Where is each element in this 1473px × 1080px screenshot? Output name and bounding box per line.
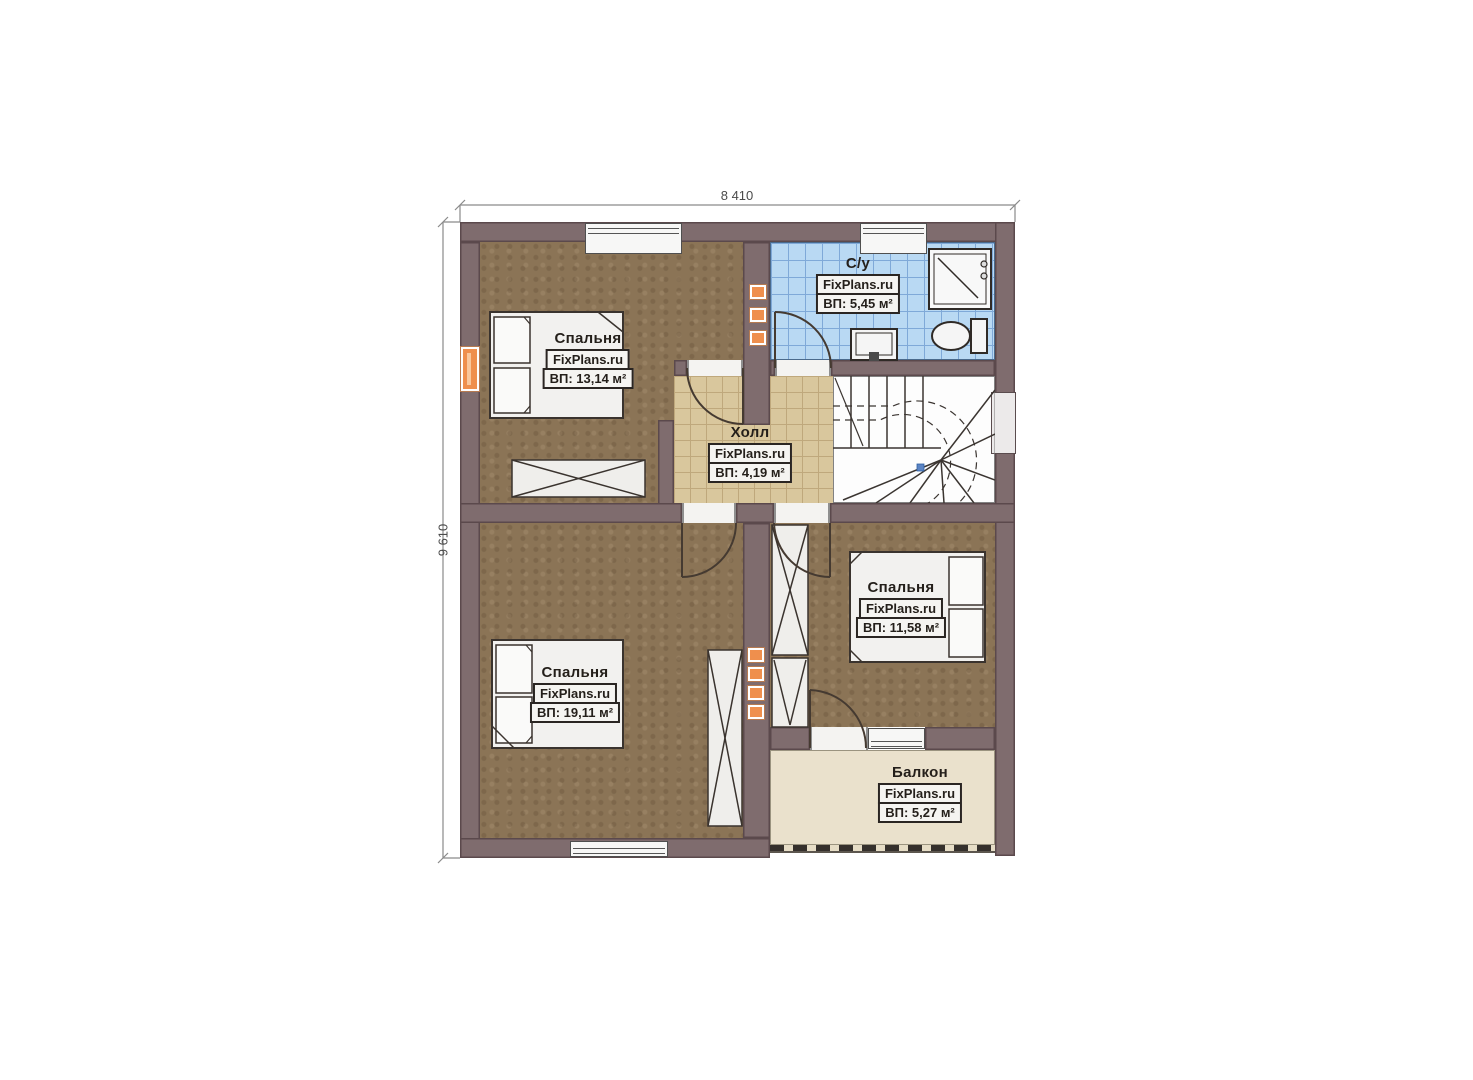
door-opening-balcony [810,727,868,750]
floor-plan-canvas: Спальня FixPlans.ru ВП: 13,14 м² С/у Fix… [0,0,1473,1080]
brand-label: FixPlans.ru [533,683,617,704]
window-bottom-bedroom3 [570,841,668,857]
vent-icon [750,285,766,299]
brand-label: FixPlans.ru [859,598,943,619]
room-label-hall: Холл FixPlans.ru ВП: 4,19 м² [708,424,792,483]
vent-icon [748,667,764,681]
room-label-bedroom-right: Спальня FixPlans.ru ВП: 11,58 м² [856,579,946,638]
room-label-balcony: Балкон FixPlans.ru ВП: 5,27 м² [878,764,962,823]
wall-exterior-top [460,222,1015,242]
dimension-height: 9 610 [436,524,451,557]
vent-icon [748,705,764,719]
room-name: Холл [731,424,770,441]
door-opening-bathroom [775,360,831,376]
window-top-bedroom1 [585,223,682,254]
door-opening-bedroom3 [682,503,736,523]
area-label: ВП: 11,58 м² [856,617,946,638]
brand-label: FixPlans.ru [546,349,630,370]
wall-bathroom-bottom-right [831,360,995,376]
room-name: Спальня [542,664,609,681]
wall-mid-left [460,503,682,523]
brand-label: FixPlans.ru [708,443,792,464]
area-label: ВП: 13,14 м² [543,368,634,389]
room-name: Спальня [555,330,622,347]
room-label-bedroom-top-left: Спальня FixPlans.ru ВП: 13,14 м² [543,330,634,389]
room-name: С/у [846,255,870,272]
vent-icon [750,331,766,345]
room-label-bathroom: С/у FixPlans.ru ВП: 5,45 м² [816,255,900,314]
wall-mid-center [736,503,774,523]
wall-exterior-right [995,222,1015,856]
vent-icon [750,308,766,322]
wall-bathroom-bottom-left-stub [674,360,687,376]
area-label: ВП: 19,11 м² [530,702,620,723]
door-opening-bedroom2 [774,503,830,523]
wall-mid-right [830,503,1015,523]
chimney-vent-left-wall [461,347,479,391]
area-label: ВП: 5,27 м² [878,802,962,823]
window-balcony-wall [868,728,925,749]
room-name: Спальня [868,579,935,596]
window-top-bathroom [860,223,927,254]
wall-exterior-left [460,242,480,858]
stair-wall-niche [991,392,1016,454]
wall-balcony-right [925,727,995,750]
brand-label: FixPlans.ru [816,274,900,295]
room-label-bedroom-bottom-left: Спальня FixPlans.ru ВП: 19,11 м² [530,664,620,723]
dimension-width: 8 410 [721,188,754,203]
area-label: ВП: 4,19 м² [708,462,792,483]
floor-stairwell [833,376,995,503]
wall-balcony-left [770,727,810,750]
area-label: ВП: 5,45 м² [816,293,900,314]
vent-icon [748,686,764,700]
room-name: Балкон [892,764,948,781]
vent-icon [748,648,764,662]
brand-label: FixPlans.ru [878,783,962,804]
door-opening-bedroom1 [687,360,743,376]
